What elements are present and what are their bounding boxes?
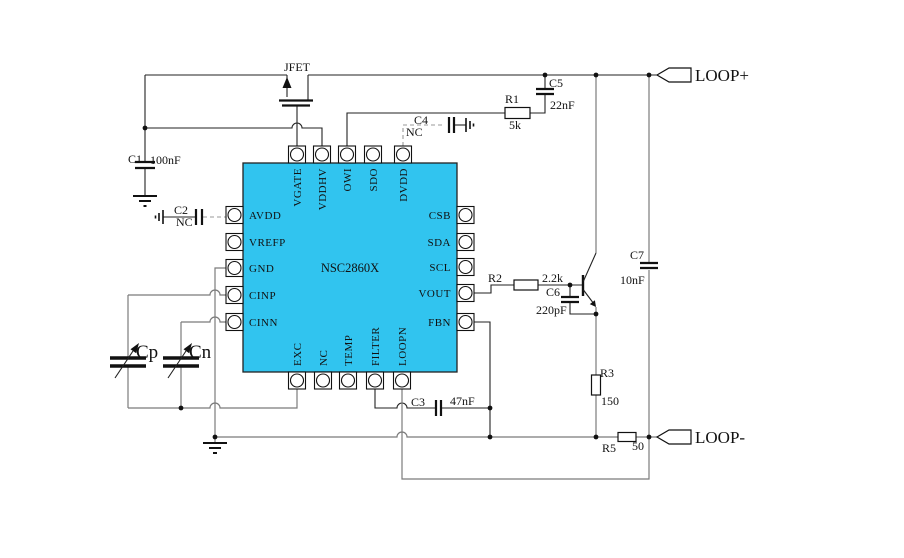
loop-plus-label: LOOP+	[695, 66, 749, 85]
ic-part-number: NSC2860X	[321, 261, 379, 275]
pin-label-vout: VOUT	[418, 288, 451, 300]
c2-value: NC	[176, 215, 193, 229]
wire-bottom-caps-exc	[128, 389, 297, 408]
pin-avdd	[226, 207, 243, 224]
pin-label-scl: SCL	[429, 262, 451, 274]
pin-label-avdd: AVDD	[249, 210, 281, 222]
loop-minus-label: LOOP-	[695, 428, 745, 447]
pin-filter	[367, 372, 384, 389]
r1-ref: R1	[505, 92, 519, 106]
cp-ref: Cp	[136, 342, 158, 363]
pin-label-nc: NC	[318, 350, 330, 366]
c1-ref: C1	[128, 152, 142, 166]
pin-vgate	[289, 146, 306, 163]
resistor-r1: R1 5k	[505, 92, 530, 132]
pin-label-vgate: VGATE	[292, 168, 304, 207]
ground-c1-icon	[133, 196, 157, 206]
junction-dot	[488, 435, 493, 440]
r2-value: 2.2k	[542, 271, 563, 285]
junction-dot	[543, 73, 548, 78]
c2-plates	[196, 209, 202, 225]
pin-cinn	[226, 314, 243, 331]
pin-sda	[457, 234, 474, 251]
loop-minus-connector-icon	[657, 430, 691, 444]
resistor-r5: R5 50	[602, 433, 644, 456]
pin-label-cinp: CINP	[249, 290, 276, 302]
pin-vrefp	[226, 234, 243, 251]
wire-fbn-branch	[474, 322, 490, 437]
cn-ref: Cn	[189, 342, 212, 363]
capacitor-c7: C7 10nF	[620, 248, 658, 287]
c3-plates	[436, 400, 441, 416]
c7-value: 10nF	[620, 273, 645, 287]
pin-label-loopn: LOOPN	[397, 327, 409, 366]
pin-fbn	[457, 314, 474, 331]
r3-ref: R3	[600, 366, 614, 380]
junction-dot	[213, 435, 218, 440]
jfet-label: JFET	[284, 60, 311, 74]
pin-label-csb: CSB	[429, 210, 451, 222]
c4-value: NC	[406, 125, 423, 139]
bjt-collector-diag	[584, 253, 597, 281]
bjt-emitter-diag	[584, 290, 595, 304]
capacitor-c2: C2 NC	[174, 203, 202, 229]
capacitor-c5: C5 22nF	[536, 76, 575, 112]
loop-plus-connector-icon	[657, 68, 691, 82]
pin-label-sda: SDA	[427, 237, 451, 249]
pin-owi	[339, 146, 356, 163]
c1-value: 100nF	[150, 153, 181, 167]
r5-value: 50	[632, 439, 644, 453]
r2-body	[514, 280, 538, 290]
ground-c4-icon	[466, 118, 474, 132]
circuit-schematic: NSC2860X AVDD VREFP GND CINP CINN CS	[0, 0, 904, 558]
wire-c1-to-vddhv	[145, 123, 322, 146]
pin-label-gnd: GND	[249, 263, 274, 275]
pin-nc	[315, 372, 332, 389]
pin-label-temp: TEMP	[343, 335, 355, 366]
pin-label-vrefp: VREFP	[249, 237, 286, 249]
pin-scl	[457, 259, 474, 276]
junction-dot	[143, 126, 148, 131]
r2-ref: R2	[488, 271, 502, 285]
capacitor-c1: C1 100nF	[128, 152, 181, 168]
schematic-canvas: NSC2860X AVDD VREFP GND CINP CINN CS	[0, 0, 904, 558]
pin-label-fbn: FBN	[428, 317, 451, 329]
pin-dvdd	[395, 146, 412, 163]
pin-gnd	[226, 260, 243, 277]
c7-plates	[640, 263, 658, 268]
c5-ref: C5	[549, 76, 563, 90]
pin-vout	[457, 285, 474, 302]
jfet-arrow	[283, 77, 292, 88]
capacitor-cp-variable: Cp	[110, 342, 158, 378]
pin-csb	[457, 207, 474, 224]
r5-ref: R5	[602, 441, 616, 455]
npn-transistor	[583, 253, 596, 307]
pin-vddhv	[314, 146, 331, 163]
pin-label-sdo: SDO	[368, 168, 380, 192]
c6-ref: C6	[546, 285, 560, 299]
pin-loopn	[394, 372, 411, 389]
pin-label-vddhv: VDDHV	[317, 168, 329, 210]
ground-main-icon	[203, 443, 227, 453]
pin-cinp	[226, 287, 243, 304]
loop-connectors: LOOP+ LOOP-	[657, 66, 749, 447]
r3-value: 150	[601, 394, 619, 408]
pin-label-filter: FILTER	[370, 327, 382, 366]
junction-dot	[179, 406, 184, 411]
junction-dot	[647, 73, 652, 78]
junction-dot	[594, 435, 599, 440]
pin-exc	[289, 372, 306, 389]
junction-dot	[488, 406, 493, 411]
pin-temp	[340, 372, 357, 389]
junction-dot	[594, 312, 599, 317]
jfet-transistor: JFET	[279, 60, 313, 106]
pin-label-cinn: CINN	[249, 317, 278, 329]
wire-ground-line	[215, 432, 657, 437]
junction-dot	[594, 73, 599, 78]
capacitor-c3: C3 47nF	[411, 394, 475, 416]
c6-value: 220pF	[536, 303, 567, 317]
c4-plates	[449, 117, 454, 133]
ground-c2-icon	[156, 210, 164, 224]
c3-ref: C3	[411, 395, 425, 409]
junction-dot	[647, 435, 652, 440]
bjt-emitter-arrow	[590, 300, 596, 307]
capacitor-c4: C4 NC	[406, 113, 454, 139]
r1-value: 5k	[509, 118, 521, 132]
c7-ref: C7	[630, 248, 644, 262]
capacitor-cn-variable: Cn	[163, 342, 212, 378]
junction-dot	[568, 283, 573, 288]
pin-sdo	[365, 146, 382, 163]
c3-value: 47nF	[450, 394, 475, 408]
pin-label-dvdd: DVDD	[398, 168, 410, 202]
r1-body	[505, 108, 530, 119]
pin-label-exc: EXC	[292, 343, 304, 367]
c6-plates	[561, 297, 579, 302]
c5-value: 22nF	[550, 98, 575, 112]
capacitor-c6: C6 220pF	[536, 285, 579, 317]
pin-label-owi: OWI	[342, 168, 354, 192]
